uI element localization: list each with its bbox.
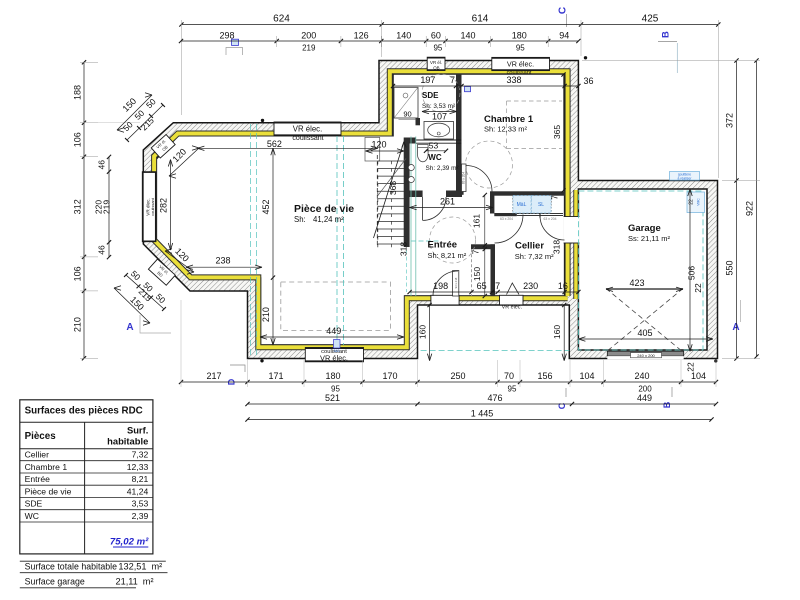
svg-text:12,33: 12,33 xyxy=(127,462,149,472)
svg-text:210: 210 xyxy=(261,307,271,322)
svg-text:VMC: VMC xyxy=(697,198,701,206)
svg-text:521: 521 xyxy=(325,393,340,403)
svg-text:132,51: 132,51 xyxy=(118,561,146,571)
svg-text:219: 219 xyxy=(302,44,316,53)
svg-text:SDE: SDE xyxy=(422,91,439,100)
svg-text:WC: WC xyxy=(25,511,39,521)
svg-text:238: 238 xyxy=(215,256,230,266)
svg-text:53: 53 xyxy=(429,141,439,151)
svg-text:156: 156 xyxy=(537,371,552,381)
svg-text:365: 365 xyxy=(552,125,562,139)
svg-text:140: 140 xyxy=(396,31,411,41)
svg-text:coulissant: coulissant xyxy=(292,135,323,142)
svg-text:Sh: 3,53 m²: Sh: 3,53 m² xyxy=(422,103,455,110)
svg-text:8,21: 8,21 xyxy=(132,474,149,484)
svg-text:Surf.: Surf. xyxy=(127,424,148,435)
svg-text:318: 318 xyxy=(552,240,562,254)
svg-text:506: 506 xyxy=(687,266,697,280)
svg-text:343: 343 xyxy=(334,349,340,353)
svg-text:22: 22 xyxy=(693,283,703,293)
svg-text:C: C xyxy=(557,402,567,409)
svg-text:240: 240 xyxy=(634,371,649,381)
svg-text:VR élec.: VR élec. xyxy=(507,60,534,69)
svg-text:A: A xyxy=(126,322,133,333)
svg-text:405: 405 xyxy=(637,328,652,338)
svg-text:217: 217 xyxy=(206,371,221,381)
svg-text:B: B xyxy=(661,31,672,38)
svg-text:7: 7 xyxy=(495,281,500,291)
svg-text:90: 90 xyxy=(403,110,411,119)
svg-text:624: 624 xyxy=(273,14,290,25)
svg-text:219: 219 xyxy=(102,200,112,214)
svg-text:1 445: 1 445 xyxy=(471,409,494,419)
svg-text:126: 126 xyxy=(354,31,369,41)
svg-text:368: 368 xyxy=(388,181,398,195)
svg-text:Sh: 12,33 m²: Sh: 12,33 m² xyxy=(484,125,527,134)
svg-text:Chambre 1: Chambre 1 xyxy=(484,114,534,125)
svg-text:180: 180 xyxy=(512,31,527,41)
svg-text:41,24: 41,24 xyxy=(127,487,149,497)
svg-text:36: 36 xyxy=(583,76,593,86)
svg-text:Entrée: Entrée xyxy=(428,240,458,251)
svg-text:452: 452 xyxy=(261,199,271,214)
svg-text:Ss: 21,11 m²: Ss: 21,11 m² xyxy=(628,234,670,243)
svg-text:120: 120 xyxy=(371,140,386,150)
svg-text:95: 95 xyxy=(433,44,442,53)
svg-text:habitable: habitable xyxy=(107,435,148,446)
svg-text:Sh:: Sh: xyxy=(294,215,306,224)
svg-text:m²: m² xyxy=(143,576,154,586)
svg-text:à réaliser: à réaliser xyxy=(678,176,693,180)
svg-text:188: 188 xyxy=(73,85,83,100)
svg-text:Pièces: Pièces xyxy=(25,431,57,442)
svg-text:170: 170 xyxy=(382,371,397,381)
svg-text:16: 16 xyxy=(558,281,568,291)
svg-text:7: 7 xyxy=(551,195,560,200)
svg-text:7: 7 xyxy=(471,249,481,254)
svg-text:Entrée: Entrée xyxy=(25,474,51,484)
svg-text:7,32: 7,32 xyxy=(132,450,149,460)
svg-text:coulissant: coulissant xyxy=(150,197,155,216)
svg-text:SL: SL xyxy=(538,202,544,208)
svg-text:562: 562 xyxy=(267,139,282,149)
svg-text:318: 318 xyxy=(398,242,408,256)
svg-text:94: 94 xyxy=(559,31,569,41)
svg-text:550: 550 xyxy=(725,260,735,275)
svg-text:Sh: 7,32 m²: Sh: 7,32 m² xyxy=(515,252,554,261)
svg-text:WC: WC xyxy=(428,153,442,162)
svg-text:106: 106 xyxy=(73,266,83,281)
svg-text:372: 372 xyxy=(725,113,735,128)
svg-text:m²: m² xyxy=(152,561,163,571)
svg-text:83 x 204: 83 x 204 xyxy=(462,172,466,184)
svg-text:65: 65 xyxy=(477,281,487,291)
svg-text:95: 95 xyxy=(508,385,517,394)
svg-text:250: 250 xyxy=(450,371,465,381)
svg-text:2,39: 2,39 xyxy=(132,511,149,521)
svg-text:Surfaces des pièces RDC: Surfaces des pièces RDC xyxy=(25,406,143,417)
svg-text:Chambre 1: Chambre 1 xyxy=(25,462,68,472)
svg-text:VR él.: VR él. xyxy=(430,60,442,65)
svg-text:7: 7 xyxy=(450,75,455,85)
svg-text:46: 46 xyxy=(97,245,107,255)
svg-text:425: 425 xyxy=(642,14,659,25)
svg-text:46: 46 xyxy=(97,160,107,170)
svg-text:338: 338 xyxy=(506,75,521,85)
svg-text:449: 449 xyxy=(326,326,341,336)
svg-text:200: 200 xyxy=(301,31,316,41)
svg-text:Surface totale habitable: Surface totale habitable xyxy=(25,561,118,571)
svg-text:312: 312 xyxy=(73,199,83,214)
svg-text:SDE: SDE xyxy=(25,499,43,509)
svg-text:70: 70 xyxy=(504,371,514,381)
svg-text:150: 150 xyxy=(472,267,482,281)
svg-text:160: 160 xyxy=(552,325,562,339)
svg-text:449: 449 xyxy=(637,393,652,403)
svg-text:3,53: 3,53 xyxy=(132,499,149,509)
svg-text:63 x 204: 63 x 204 xyxy=(500,217,513,221)
svg-text:C: C xyxy=(558,7,569,14)
svg-text:63 x 204: 63 x 204 xyxy=(543,217,556,221)
svg-text:171: 171 xyxy=(268,371,283,381)
svg-text:MàL: MàL xyxy=(517,202,527,208)
svg-text:107: 107 xyxy=(432,112,447,122)
svg-text:210: 210 xyxy=(73,317,83,332)
svg-text:A: A xyxy=(732,322,739,333)
svg-text:Pièce de vie: Pièce de vie xyxy=(25,487,72,497)
svg-text:282: 282 xyxy=(159,198,169,213)
svg-text:Surface garage: Surface garage xyxy=(25,576,85,586)
svg-text:B: B xyxy=(662,401,672,408)
svg-text:104: 104 xyxy=(579,371,594,381)
svg-text:41,24 m²: 41,24 m² xyxy=(313,215,344,224)
svg-text:Sh: 2,39 m²: Sh: 2,39 m² xyxy=(426,165,459,172)
svg-text:VR élec.: VR élec. xyxy=(502,304,522,310)
svg-text:VR élec.: VR élec. xyxy=(293,125,322,134)
svg-text:160: 160 xyxy=(418,325,428,339)
svg-text:Cellier: Cellier xyxy=(515,241,544,252)
svg-text:261: 261 xyxy=(440,197,455,207)
svg-text:104: 104 xyxy=(691,371,706,381)
svg-text:60: 60 xyxy=(431,31,441,41)
svg-text:240 x 200: 240 x 200 xyxy=(637,353,655,358)
svg-text:Cellier: Cellier xyxy=(25,450,49,460)
svg-text:21,11: 21,11 xyxy=(115,576,137,586)
svg-text:Garage: Garage xyxy=(628,223,661,234)
svg-text:Sh: 8,21 m²: Sh: 8,21 m² xyxy=(428,251,467,260)
svg-text:22: 22 xyxy=(689,199,695,205)
svg-text:922: 922 xyxy=(745,201,755,216)
svg-text:106: 106 xyxy=(73,132,83,147)
svg-text:476: 476 xyxy=(487,393,502,403)
svg-text:Pièce de vie: Pièce de vie xyxy=(294,203,354,215)
svg-text:161: 161 xyxy=(472,214,482,228)
svg-text:93 x 218: 93 x 218 xyxy=(454,277,458,288)
svg-text:75,02 m²: 75,02 m² xyxy=(110,536,149,547)
svg-text:198: 198 xyxy=(433,281,448,291)
svg-text:95: 95 xyxy=(516,44,525,53)
svg-text:614: 614 xyxy=(472,14,489,25)
svg-text:197: 197 xyxy=(420,75,435,85)
svg-text:180: 180 xyxy=(325,371,340,381)
svg-text:230: 230 xyxy=(523,281,538,291)
svg-text:298: 298 xyxy=(219,31,234,41)
svg-text:140: 140 xyxy=(460,31,475,41)
svg-text:423: 423 xyxy=(629,278,644,288)
